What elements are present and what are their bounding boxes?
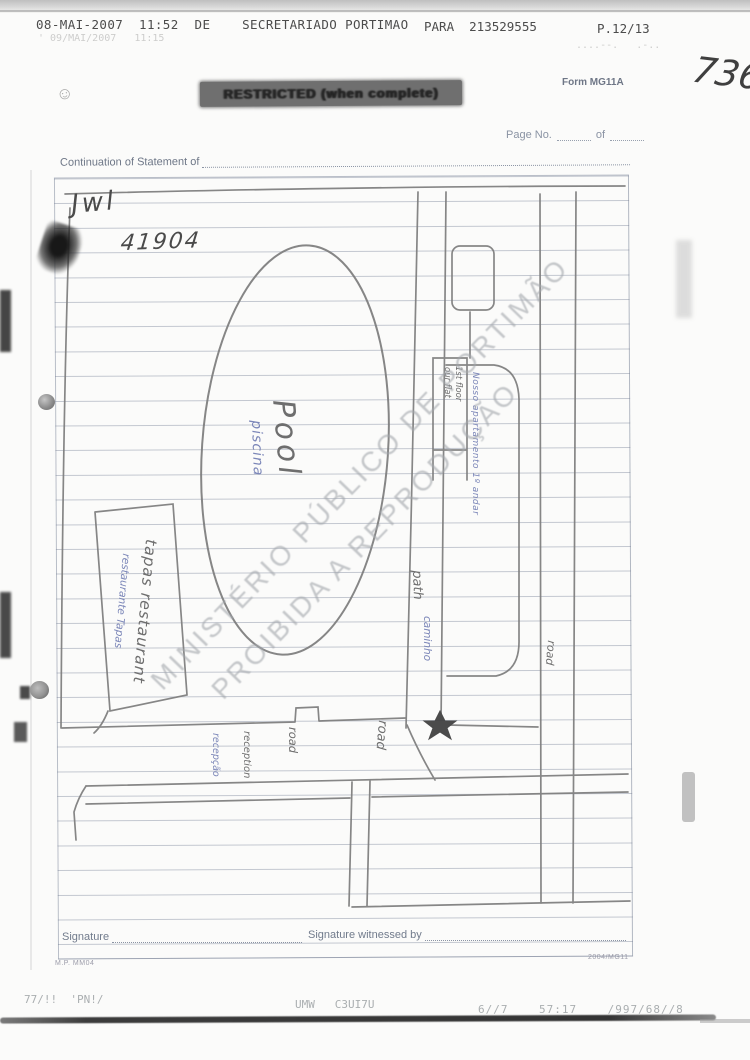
page-no-row: Page No. of (506, 129, 644, 141)
fax-header-sender: 08-MAI-2007 11:52 DE SECRETARIADO PORTIM… (36, 17, 409, 32)
ink-smudge-near-hole (20, 686, 30, 699)
pool-label: Pool (265, 398, 307, 480)
complex-bottom-line (62, 707, 538, 728)
right-edge-smudge-bottom (682, 772, 695, 822)
page-of-blank (610, 129, 644, 141)
handwritten-page-number: 736 (689, 50, 750, 99)
reception-label-portuguese: recepção (210, 733, 221, 777)
form-print-code-left: M.P. MM04 (55, 960, 94, 967)
map-top-border (65, 186, 625, 194)
path-label: path (409, 570, 425, 600)
bottom-border-line (352, 901, 630, 907)
fax-header-ghost-left: ' 09/MAI/2007 11:15 (38, 33, 164, 44)
fax-footer-right: 6//7 57:17 /997/68//8 (478, 1003, 684, 1016)
handwritten-initials: Jwl (70, 186, 118, 220)
edge-smudge-3 (14, 722, 27, 742)
hole-punch-top (38, 394, 55, 410)
vertical-road-right-line (367, 781, 370, 906)
right-edge-smudge-top (676, 240, 692, 318)
bottom-road-left-curve (74, 786, 86, 840)
fax-header-ghost-right: ....--. .-.. (576, 40, 660, 51)
page-no-blank (557, 129, 591, 141)
continuation-label: Continuation of Statement of (60, 156, 200, 169)
fax-header-recipient: PARA 213529555 (424, 19, 537, 34)
scanner-top-line (0, 10, 750, 12)
main-road-left-line (406, 192, 418, 728)
continuation-blank-line (202, 153, 630, 168)
map-left-border (61, 208, 70, 728)
bottom-road-lower-line (86, 792, 628, 804)
pool-label-portuguese: piscina (248, 420, 266, 477)
edge-smudge-2 (0, 592, 11, 658)
hole-punch-bottom (30, 681, 49, 699)
fax-scan-page: 08-MAI-2007 11:52 DE SECRETARIADO PORTIM… (0, 0, 750, 1060)
vertical-road-left-line (349, 782, 352, 906)
road-label-bottom: road (372, 720, 390, 751)
bottom-road-upper-line (86, 774, 628, 786)
fax-footer-left: 77/!! 'PN!/ (24, 993, 103, 1006)
of-label: of (596, 129, 605, 141)
paper-crease (30, 170, 32, 970)
smiley-doodle: ☺ (54, 82, 75, 105)
fax-footer-center: UMW C3UI7U (295, 998, 374, 1011)
continuation-row: Continuation of Statement of (60, 153, 630, 168)
fax-header-page-indicator: P.12/13 (597, 21, 650, 36)
scan-bottom-edge-faint (700, 1019, 750, 1023)
restricted-banner-label: RESTRICTED (when complete) (223, 85, 438, 102)
road-label-middle: road (286, 727, 300, 753)
restricted-banner: RESTRICTED (when complete) (200, 80, 462, 107)
edge-smudge-1 (0, 290, 11, 352)
small-building-outline (452, 246, 494, 310)
reception-label: reception (241, 731, 252, 778)
form-code: Form MG11A (562, 77, 624, 88)
star-marker (424, 711, 456, 739)
handwritten-number: 41904 (119, 228, 202, 256)
path-label-portuguese: caminho (421, 616, 433, 661)
page-no-label: Page No. (506, 129, 552, 141)
road-label-right: road (543, 640, 558, 666)
right-road-right-line (573, 192, 576, 903)
